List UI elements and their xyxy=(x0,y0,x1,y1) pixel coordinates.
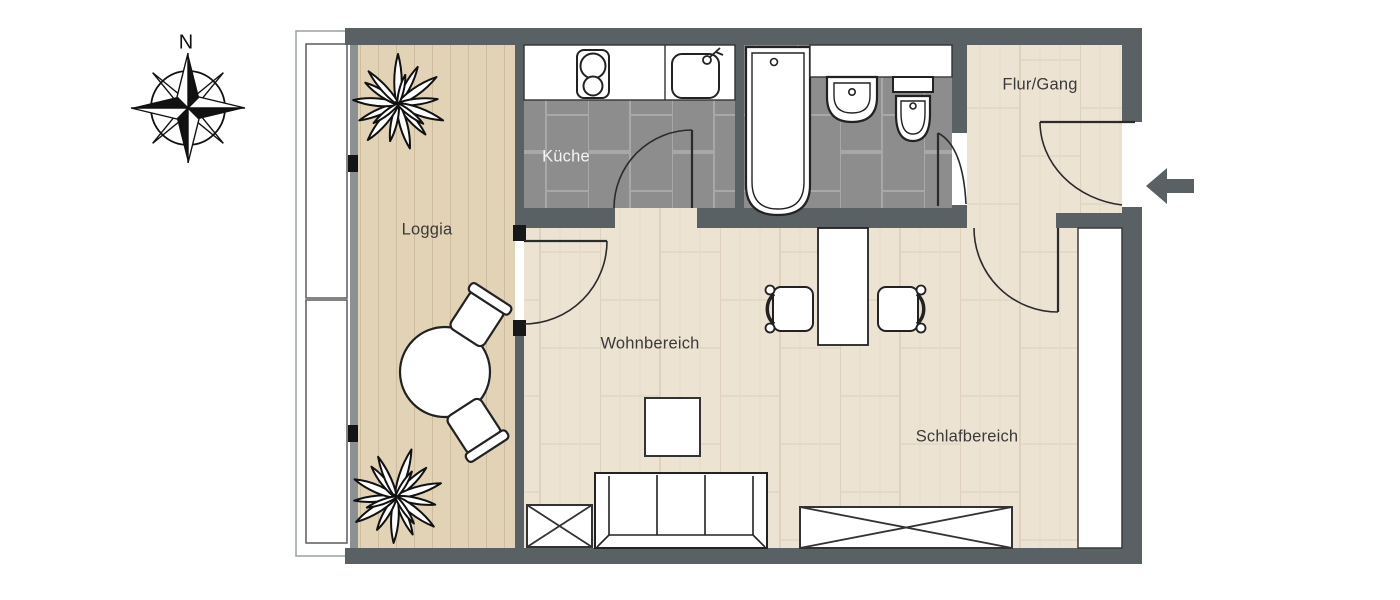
washbasin-icon xyxy=(827,77,877,122)
floor-plan-drawing xyxy=(0,0,1400,600)
toilet-icon xyxy=(893,77,933,141)
floor-plan-page: N Loggia Küche Flur/Gang Wohnbereich Sch… xyxy=(0,0,1400,600)
room-label-sleeping: Schlafbereich xyxy=(916,428,1019,447)
crossed-cabinet xyxy=(527,505,592,547)
bath-counter xyxy=(810,45,952,77)
bathtub-icon xyxy=(746,47,810,215)
stove-icon xyxy=(577,50,609,98)
desk-chair xyxy=(878,286,926,333)
kitchen-sink-icon xyxy=(672,48,723,98)
room-label-kitchen: Küche xyxy=(542,148,590,167)
glazing-track xyxy=(350,44,358,548)
wardrobe-strip xyxy=(1078,228,1122,548)
sofa xyxy=(595,473,767,548)
loggia-glazing xyxy=(296,31,359,556)
entrance-arrow-icon xyxy=(1146,168,1194,204)
compass-north-label: N xyxy=(179,32,193,55)
desk-chair xyxy=(766,286,814,333)
room-label-living: Wohnbereich xyxy=(600,335,699,354)
hallway-wood-floor xyxy=(967,45,1122,228)
crossed-bed xyxy=(800,507,1012,548)
coffee-table xyxy=(645,398,700,456)
desk xyxy=(818,228,868,345)
room-label-loggia: Loggia xyxy=(402,221,453,240)
room-label-hallway: Flur/Gang xyxy=(1002,76,1077,95)
kitchen-counter xyxy=(524,45,735,100)
compass-rose-icon xyxy=(131,53,245,163)
